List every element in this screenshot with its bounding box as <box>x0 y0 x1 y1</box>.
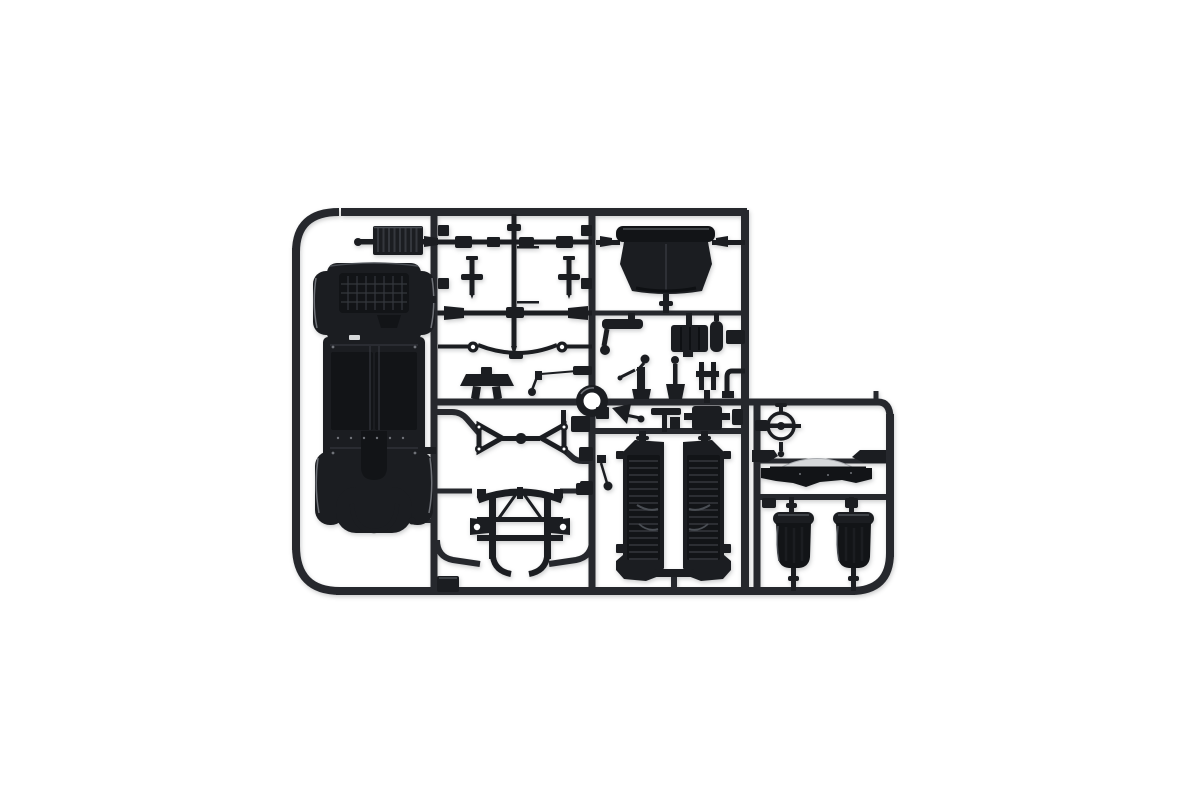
lug-hole <box>474 524 480 530</box>
eyelet-hole <box>560 345 564 349</box>
side-nub-part <box>726 330 745 344</box>
gate-nub <box>438 225 449 236</box>
panel-bottom-connector <box>653 569 695 577</box>
chassis-floor-pan-part <box>313 263 436 533</box>
tie-rod-ball <box>516 433 527 444</box>
eyelet-hole <box>471 345 475 349</box>
gate-nub <box>762 498 776 508</box>
bottom-tab-part <box>437 576 459 592</box>
sprue-photo <box>0 0 1200 800</box>
gate-nub <box>581 278 592 289</box>
lug-hole <box>560 524 566 530</box>
gate-nub <box>438 278 449 289</box>
bonnet-side-panel-left <box>616 431 664 581</box>
glint <box>349 335 360 340</box>
rear-axle-part <box>438 306 592 320</box>
ring-hole <box>584 393 601 410</box>
bonnet-side-panel-right <box>683 431 731 581</box>
gate-nub <box>581 225 592 236</box>
